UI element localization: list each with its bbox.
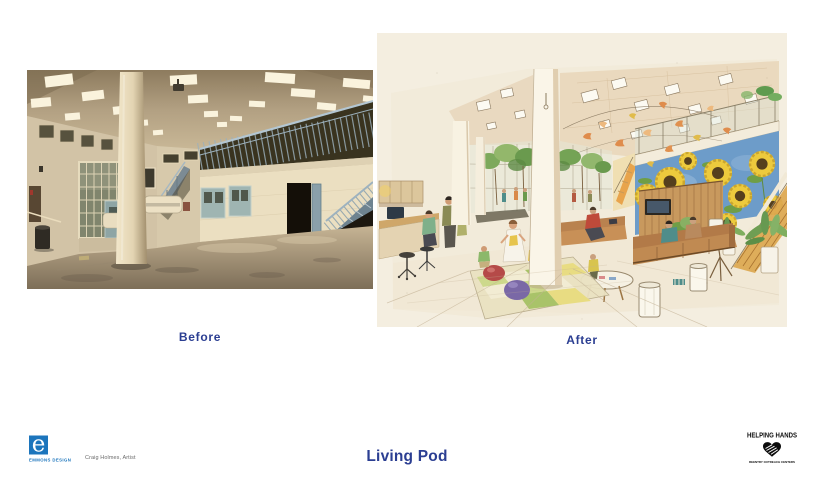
helping-hands-logo: HELPING HANDS REENTRY OUTREACH CENTERS [741,429,803,465]
after-label: After [377,333,787,347]
before-photo [27,70,373,289]
child-at-table [590,254,596,260]
before-label: Before [27,330,373,344]
handshake-heart-icon [763,442,781,457]
before-photo-art [27,70,373,289]
desk-monitor [387,207,404,219]
after-rendering-art [377,33,787,327]
far-stair [613,153,636,211]
after-rendering [377,33,787,327]
helping-hands-logo-art: HELPING HANDS REENTRY OUTREACH CENTERS [741,429,803,465]
helping-hands-wordmark: HELPING HANDS [747,433,797,440]
helping-hands-tagline: REENTRY OUTREACH CENTERS [749,460,795,464]
slide: Before After e EMMONS DESIGN Craig Holme… [0,0,814,488]
page-title: Living Pod [0,448,814,466]
